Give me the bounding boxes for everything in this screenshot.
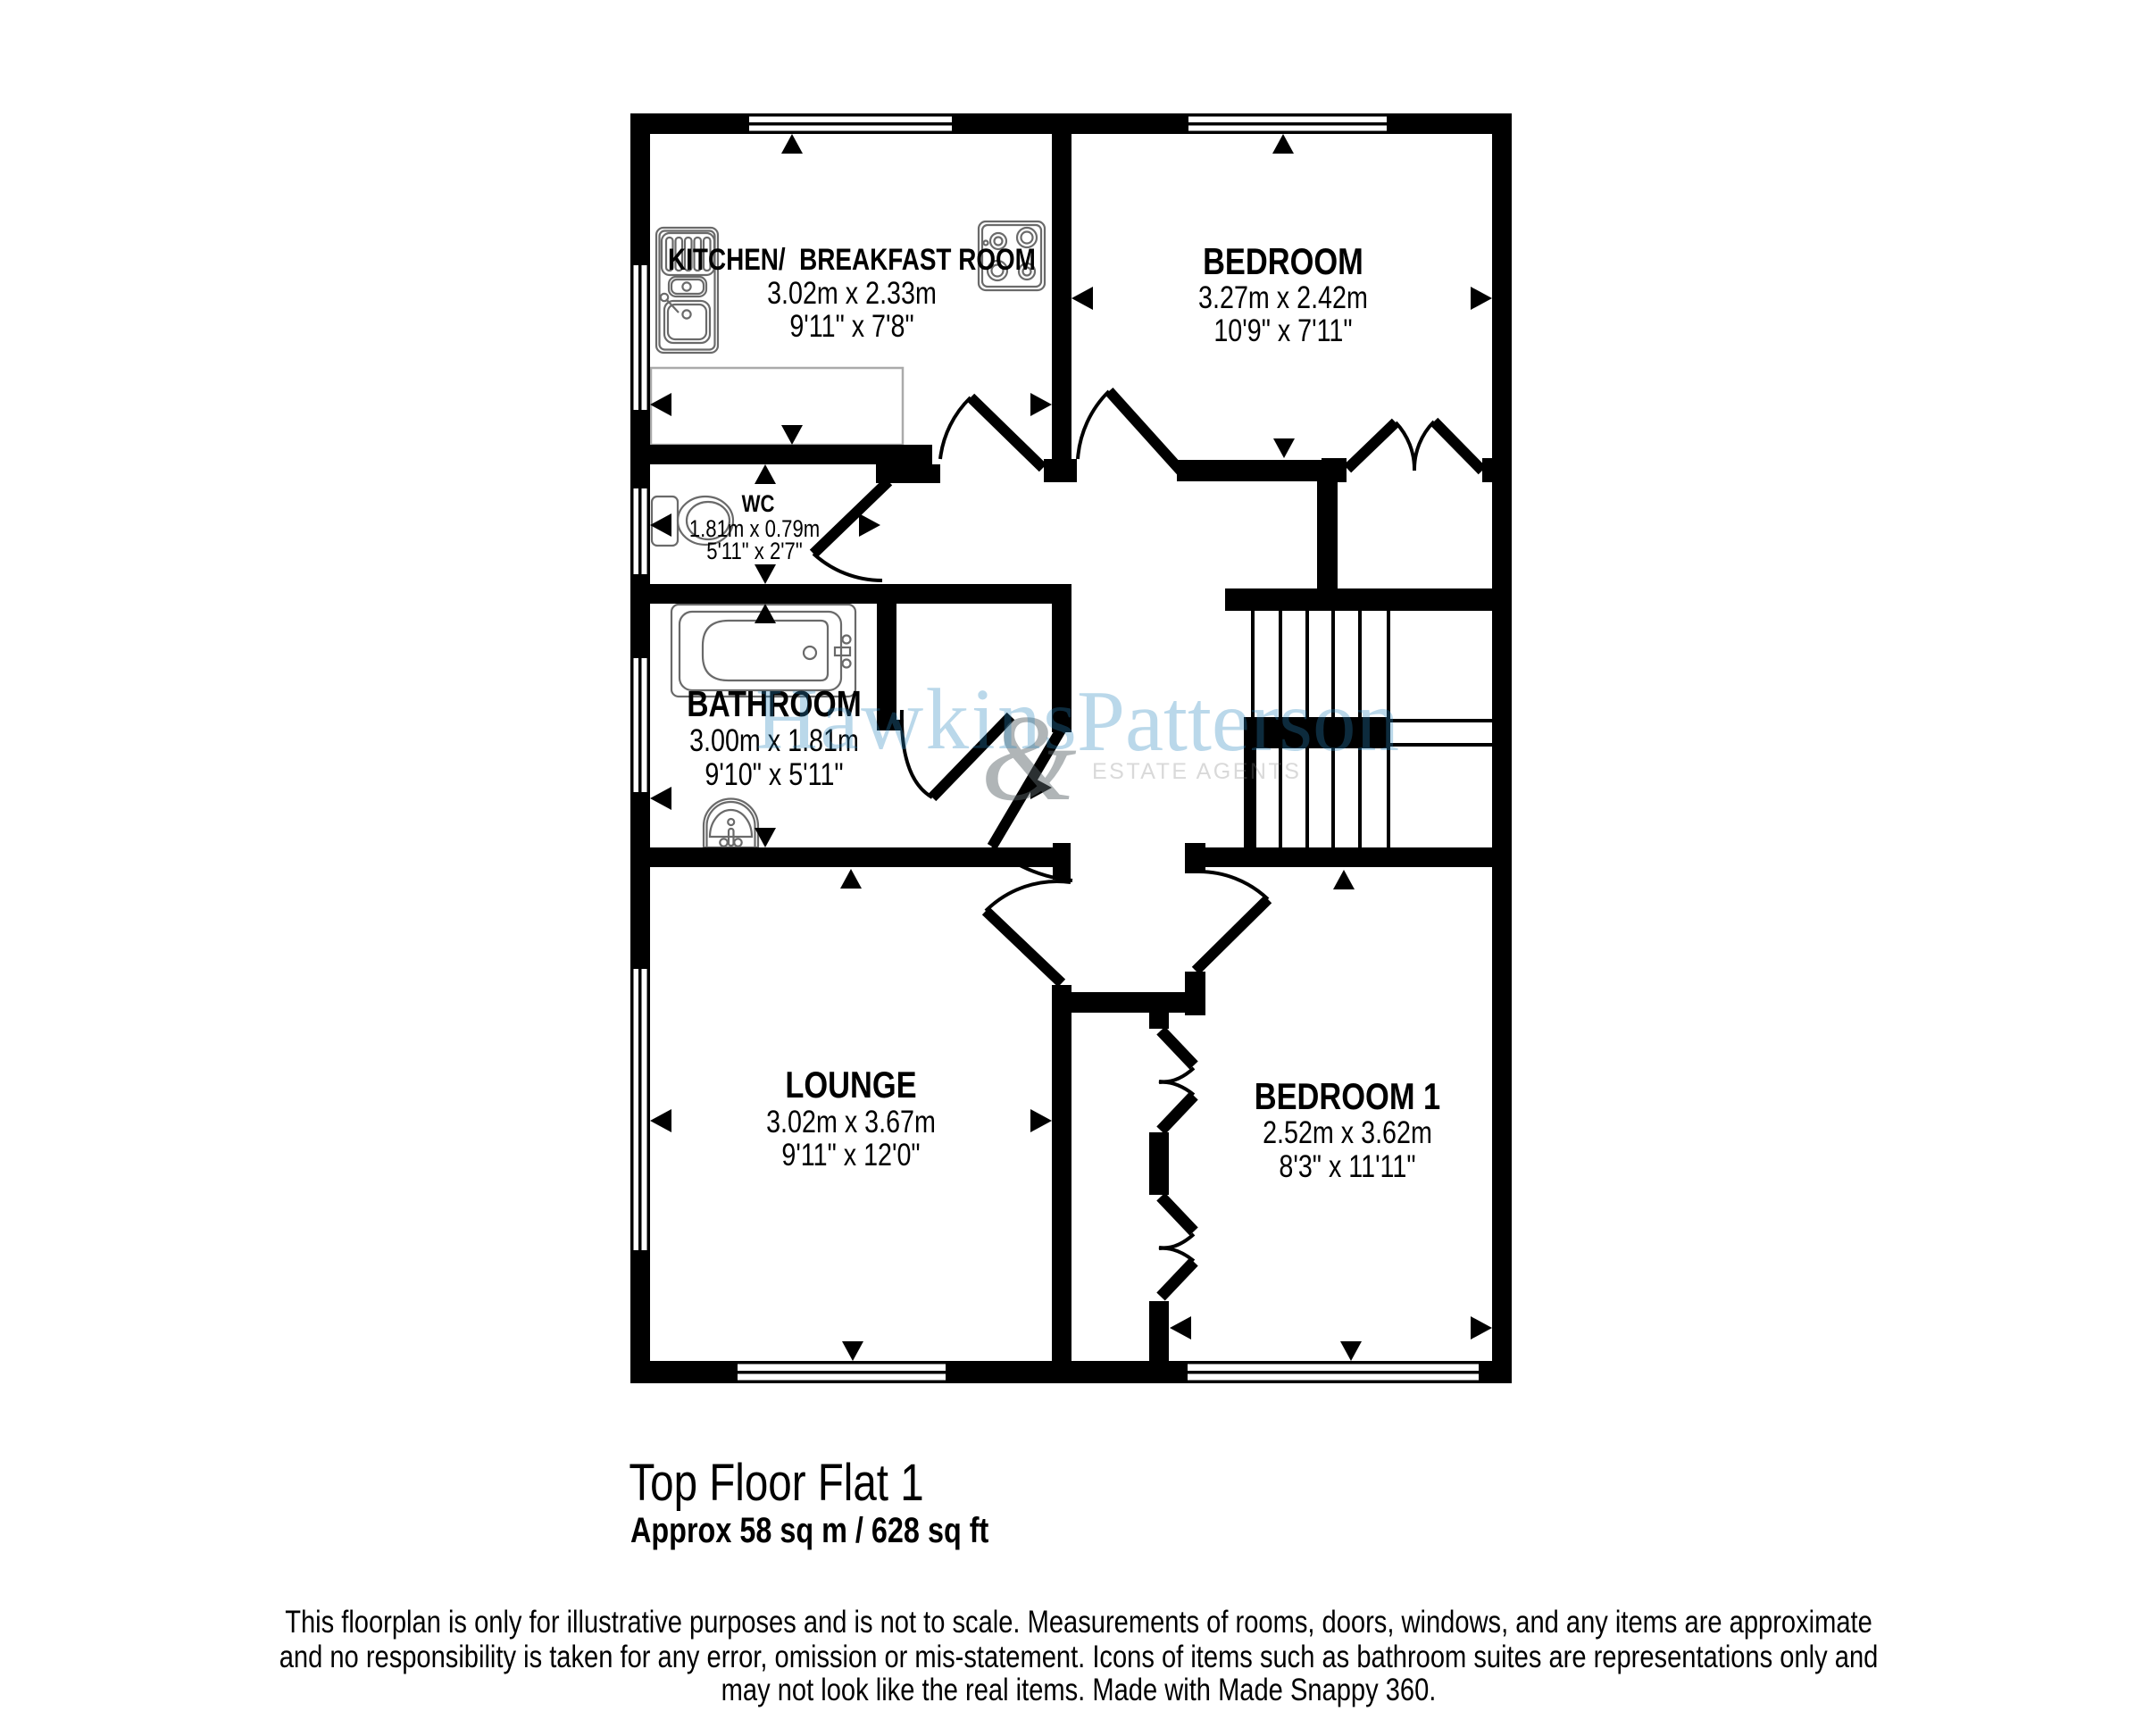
svg-text:2.52m x 3.62m: 2.52m x 3.62m [1263,1114,1432,1149]
svg-text:WC: WC [742,491,775,518]
svg-text:This floorplan is only for ill: This floorplan is only for illustrative … [285,1604,1872,1639]
svg-text:5'11" x 2'7": 5'11" x 2'7" [706,538,802,565]
svg-text:ESTATE AGENTS: ESTATE AGENTS [1092,759,1301,784]
svg-text:KITCHEN/ BREAKFAST ROOM: KITCHEN/ BREAKFAST ROOM [668,242,1036,276]
svg-text:Patterson: Patterson [1077,673,1399,769]
svg-text:9'11" x 7'8": 9'11" x 7'8" [789,308,913,343]
svg-text:9'11" x 12'0": 9'11" x 12'0" [781,1137,920,1172]
svg-text:and no responsibility is taken: and no responsibility is taken for any e… [279,1639,1879,1673]
svg-text:may not look like the real ite: may not look like the real items. Made w… [721,1672,1437,1707]
svg-text:BEDROOM 1: BEDROOM 1 [1255,1076,1440,1118]
svg-text:Hawkins: Hawkins [755,672,1079,767]
svg-text:10'9" x 7'11": 10'9" x 7'11" [1213,313,1352,347]
svg-text:3.27m x 2.42m: 3.27m x 2.42m [1198,280,1368,314]
svg-text:LOUNGE: LOUNGE [785,1064,916,1106]
svg-text:BEDROOM: BEDROOM [1203,241,1363,283]
svg-text:3.02m x 2.33m: 3.02m x 2.33m [767,275,937,310]
svg-text:Approx 58 sq m / 628 sq ft: Approx 58 sq m / 628 sq ft [630,1510,988,1550]
svg-text:8'3" x 11'11": 8'3" x 11'11" [1279,1148,1415,1183]
svg-text:Top Floor Flat 1: Top Floor Flat 1 [629,1455,923,1513]
svg-text:3.02m x 3.67m: 3.02m x 3.67m [766,1104,936,1139]
